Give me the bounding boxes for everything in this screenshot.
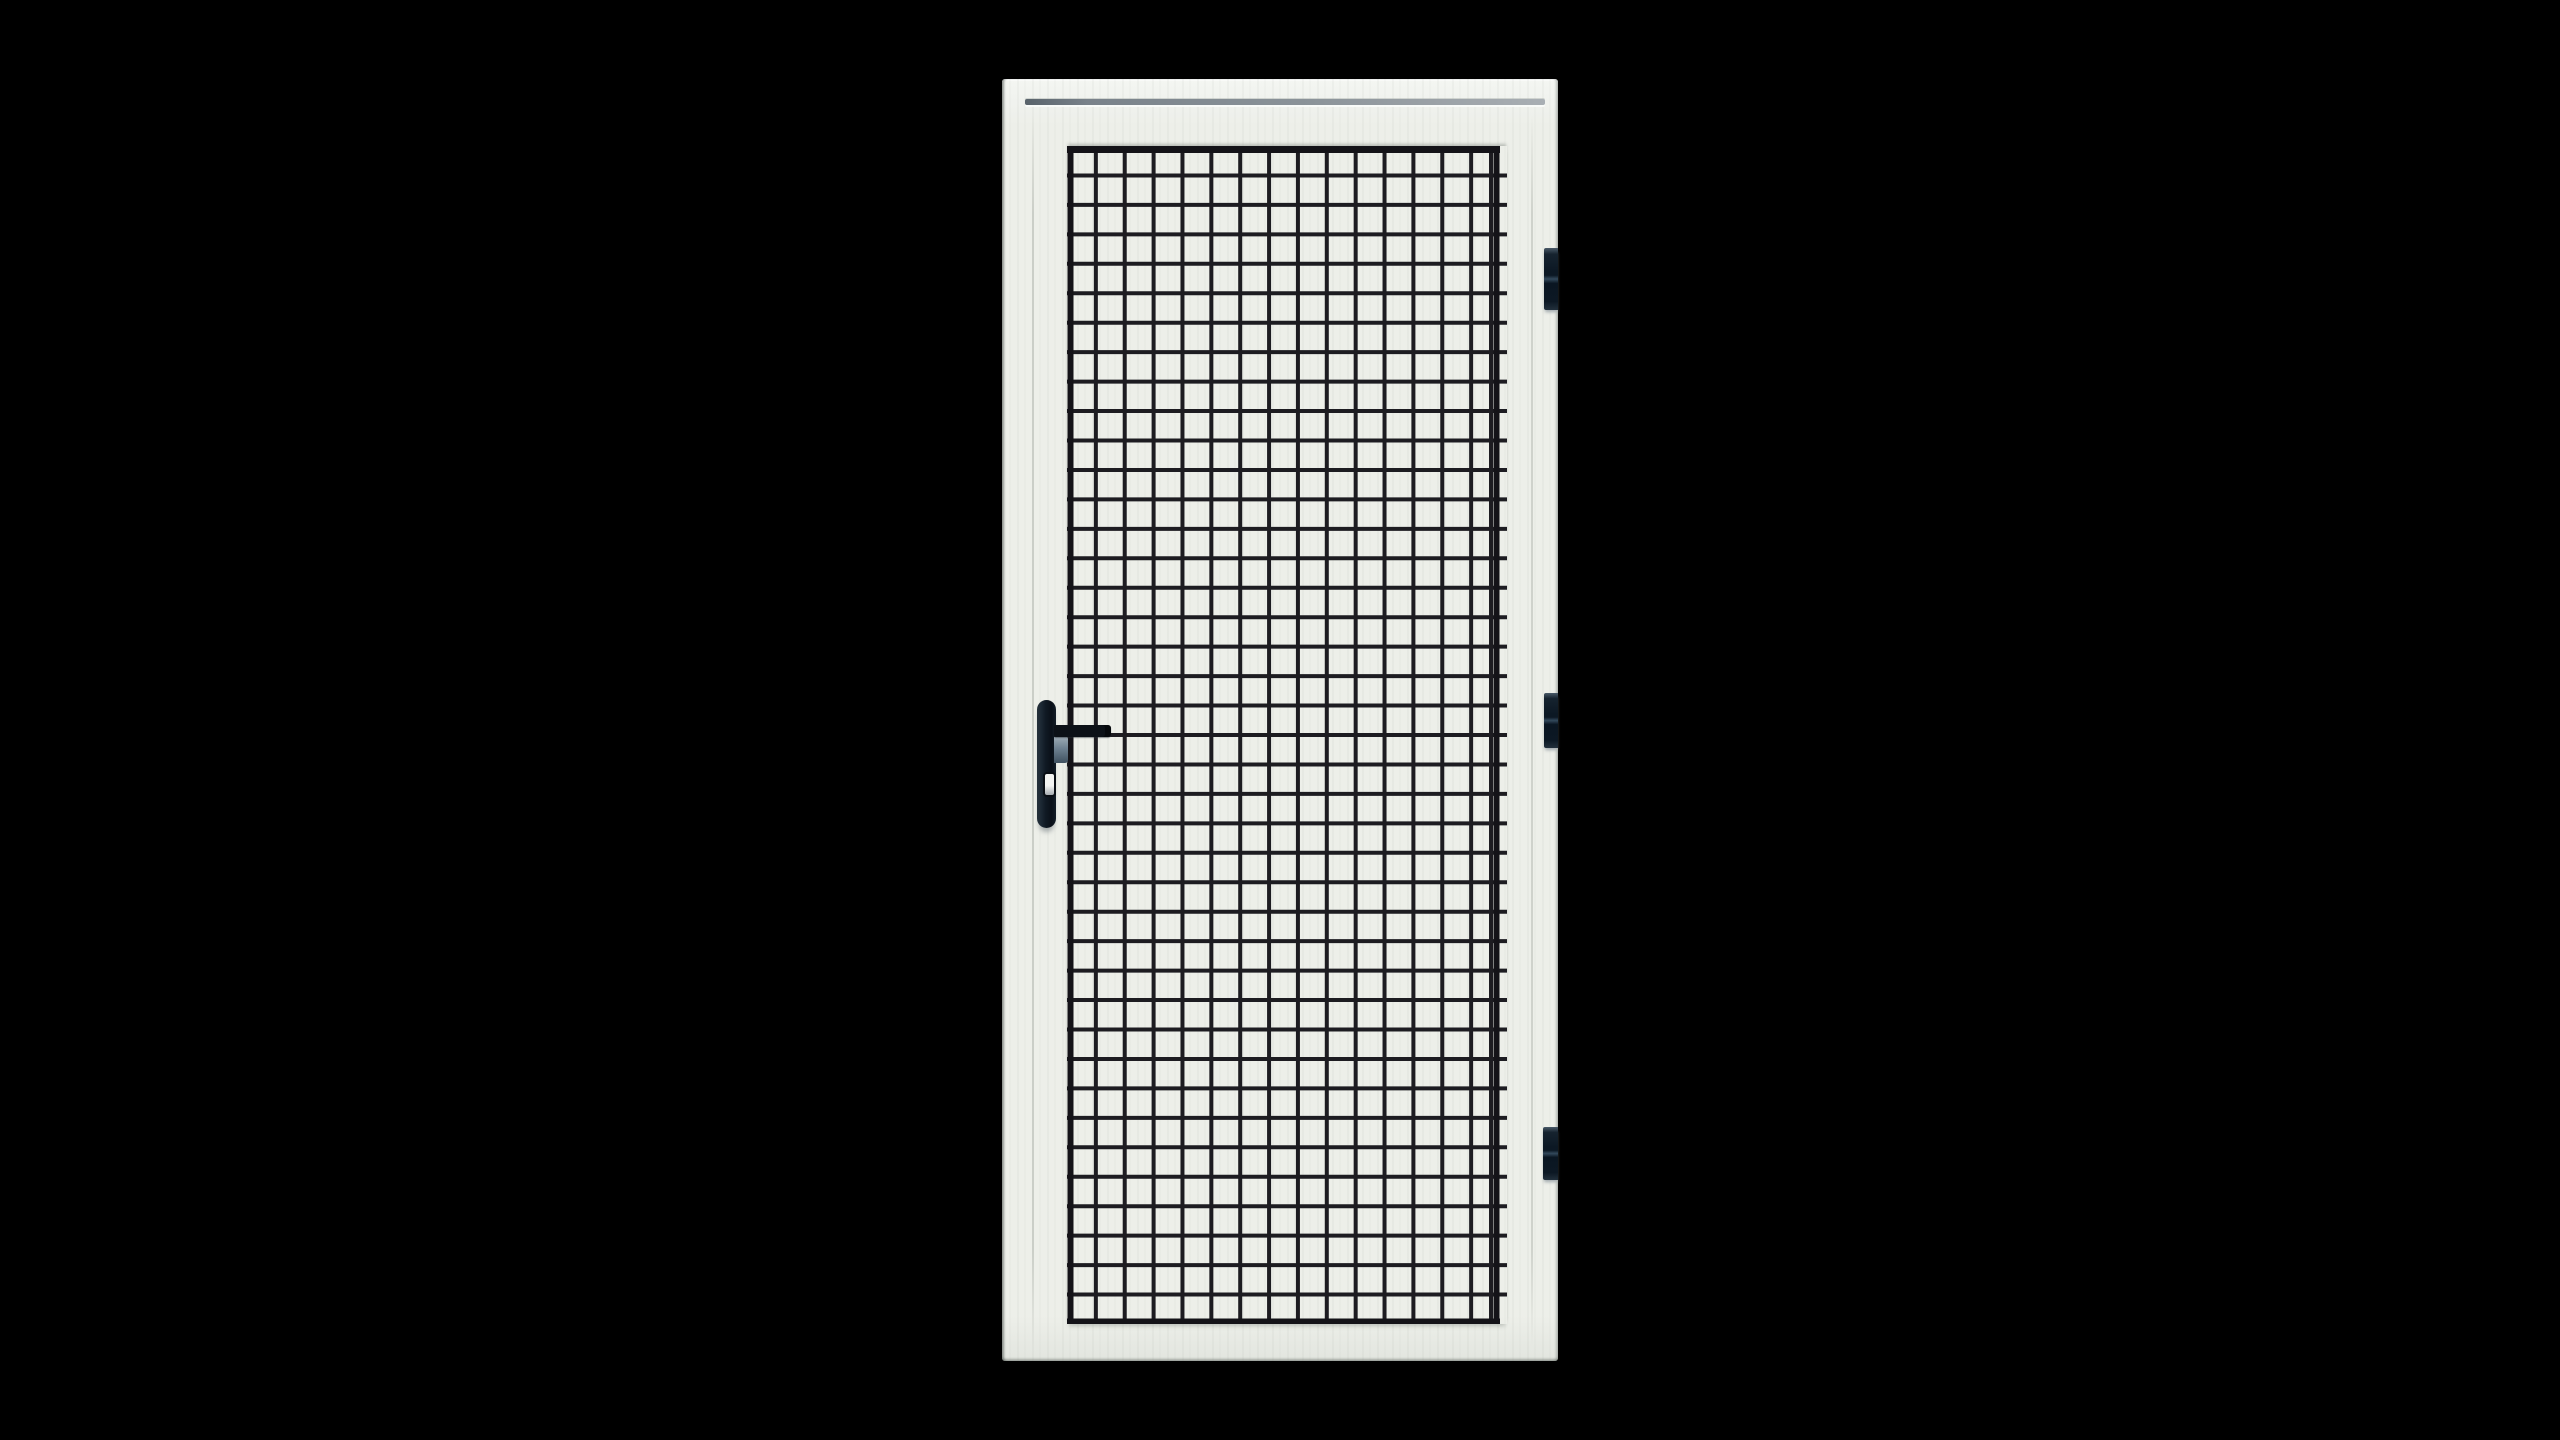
handle-lever xyxy=(1054,725,1111,737)
top-trim-groove xyxy=(1025,99,1545,105)
hinge-middle xyxy=(1544,693,1558,748)
hinge-top xyxy=(1544,248,1558,310)
hinge-bottom xyxy=(1543,1127,1558,1180)
mesh-grid xyxy=(1067,146,1507,1324)
left-stile-seam xyxy=(1032,115,1034,1347)
lock-body xyxy=(1054,737,1068,763)
security-door xyxy=(1002,79,1558,1361)
handle-backplate xyxy=(1037,700,1056,828)
product-photo-scene xyxy=(0,0,2560,1440)
keyhole xyxy=(1043,772,1056,797)
right-stile-seam xyxy=(1531,115,1533,1347)
security-mesh-panel xyxy=(1067,146,1507,1324)
